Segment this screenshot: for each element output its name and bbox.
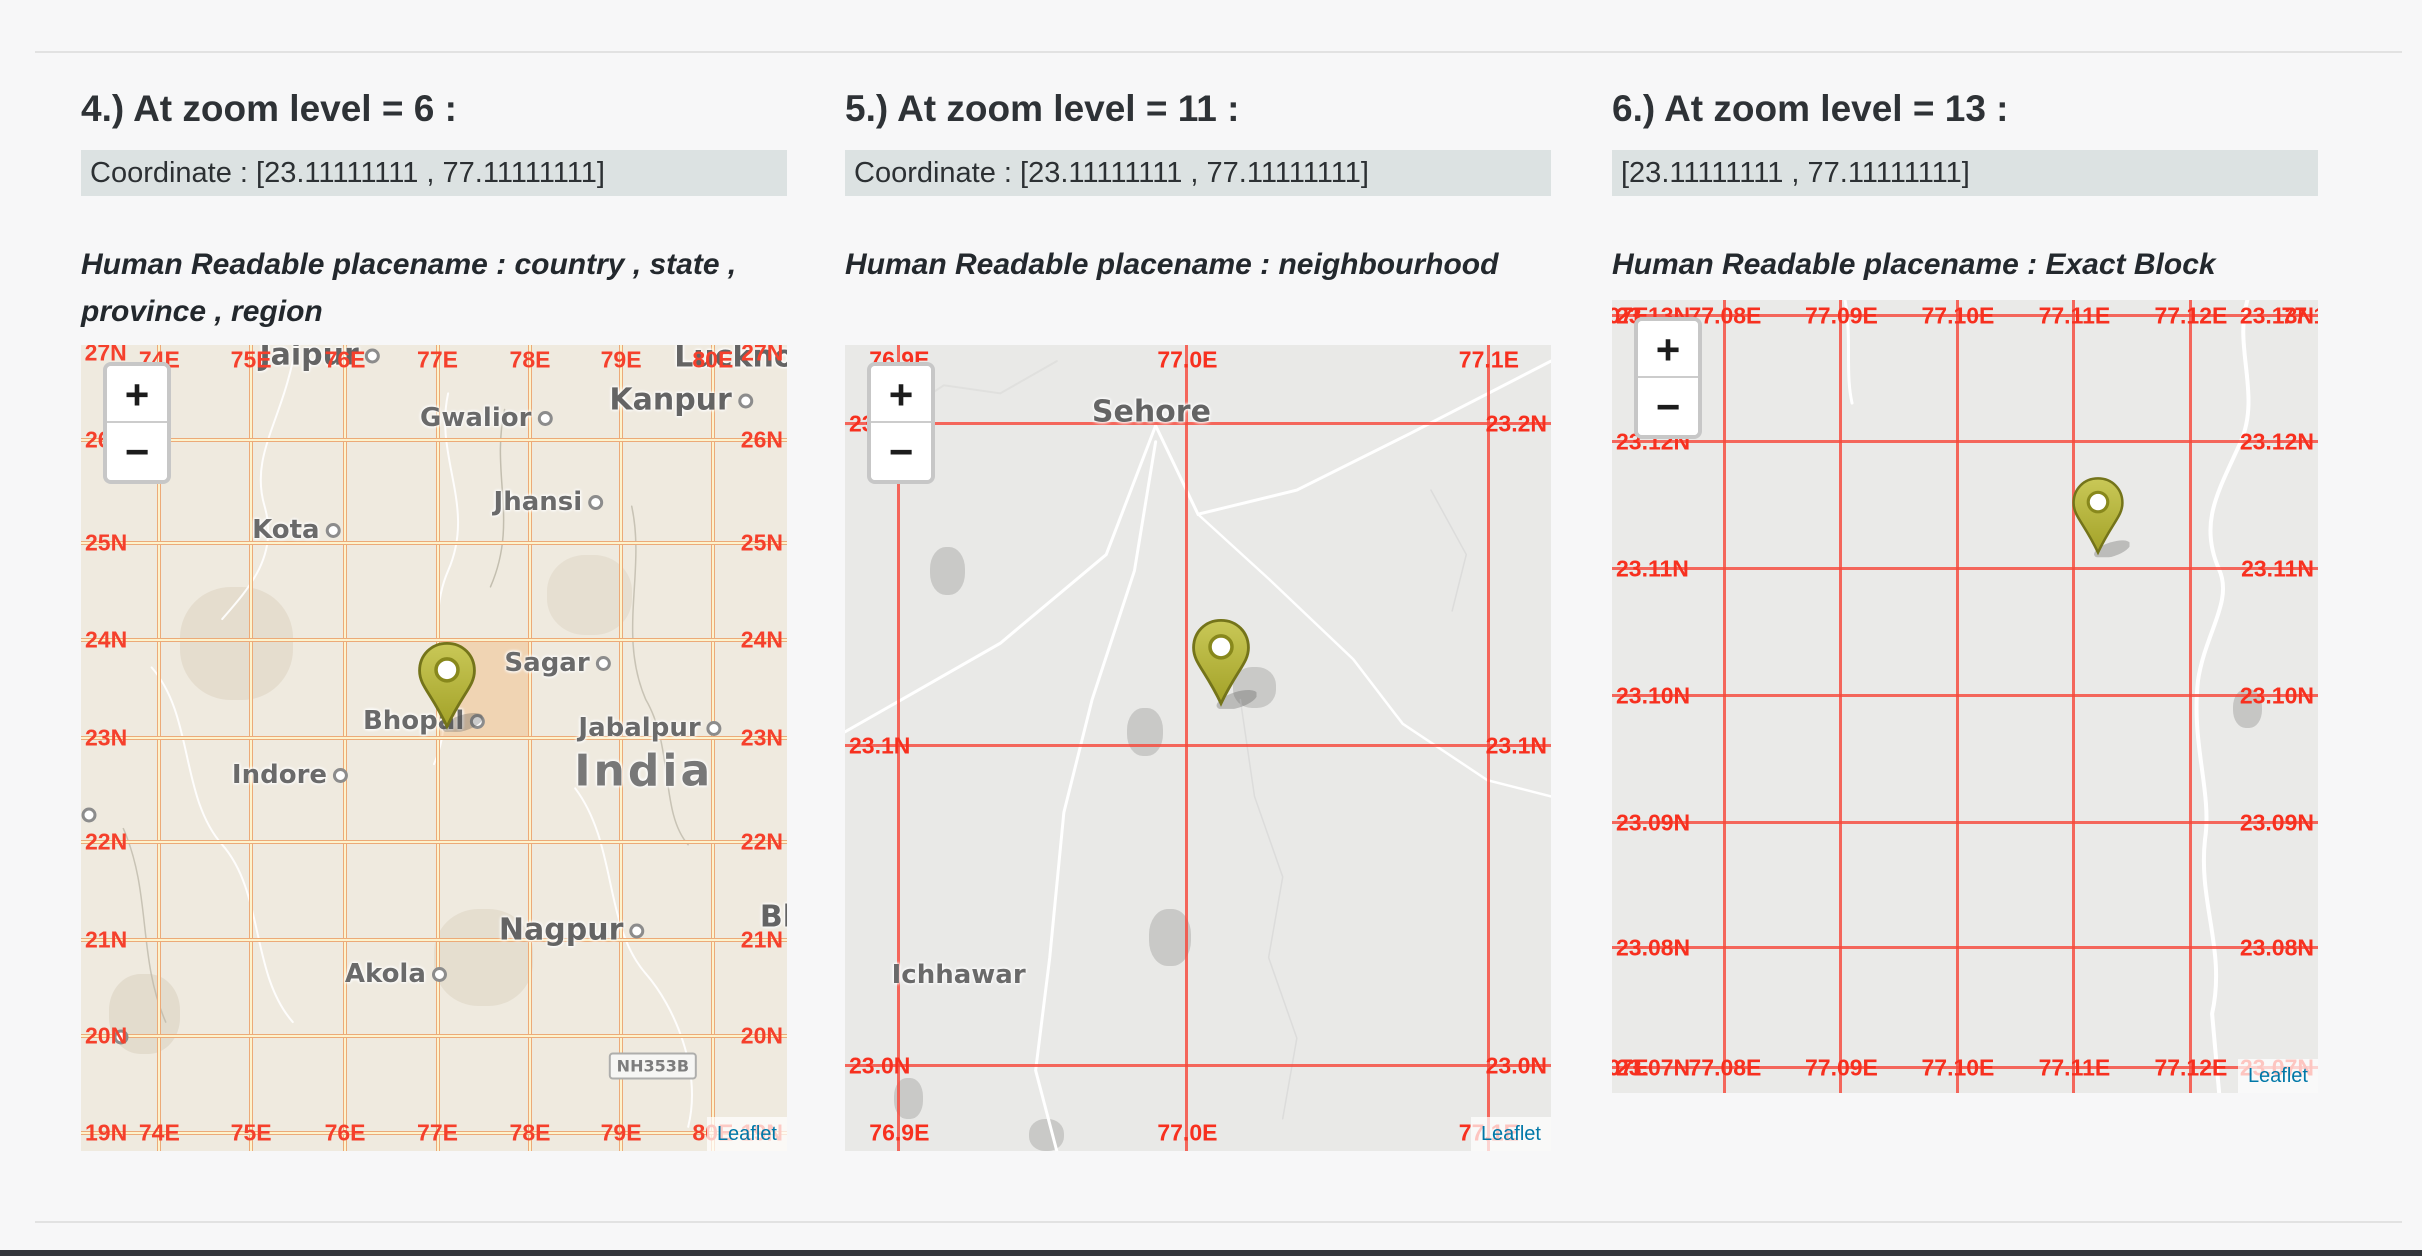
zoom-in-button[interactable]: + xyxy=(107,366,167,423)
zoom-out-button[interactable]: − xyxy=(107,423,167,480)
zoom-control: +− xyxy=(867,362,935,484)
marker-pin-icon xyxy=(2067,475,2130,557)
coordinate-value: [23.11111111 , 77.11111111] xyxy=(1612,150,2318,196)
panel-heading: 4.) At zoom level = 6 : xyxy=(81,88,787,130)
panel-zoom-6: 4.) At zoom level = 6 : Coordinate : [23… xyxy=(81,88,787,130)
placename-text: Human Readable placename : neighbourhood xyxy=(845,241,1551,288)
panel-zoom-13: 6.) At zoom level = 13 : [23.11111111 , … xyxy=(1612,88,2318,130)
map-marker[interactable] xyxy=(2067,475,2130,562)
attribution-bar: Leaflet xyxy=(2238,1059,2318,1093)
coordinate-value: Coordinate : [23.11111111 , 77.11111111] xyxy=(81,150,787,196)
leaflet-map-zoom-13[interactable]: 77.08E77.08E77.09E77.09E77.10E77.10E77.1… xyxy=(1612,300,2318,1093)
map-marker[interactable] xyxy=(1185,617,1256,714)
map-roads xyxy=(1612,300,2318,1093)
panel-heading: 6.) At zoom level = 13 : xyxy=(1612,88,2318,130)
zoom-in-button[interactable]: + xyxy=(1638,321,1698,378)
leaflet-attribution-link[interactable]: Leaflet xyxy=(2248,1065,2308,1087)
leaflet-map-zoom-6[interactable]: 74E74E75E75E76E76E77E77E78E78E79E79E80E8… xyxy=(81,345,787,1151)
map-roads xyxy=(845,345,1551,1151)
attribution-bar: Leaflet xyxy=(1471,1117,1551,1151)
map-marker[interactable] xyxy=(411,640,482,737)
zoom-out-button[interactable]: − xyxy=(1638,378,1698,435)
leaflet-map-zoom-11[interactable]: 76.9E76.9E77.0E77.0E77.1E77.1E23.2N23.2N… xyxy=(845,345,1551,1151)
marker-pin-icon xyxy=(411,640,482,732)
marker-pin-icon xyxy=(1185,617,1256,709)
panel-zoom-11: 5.) At zoom level = 11 : Coordinate : [2… xyxy=(845,88,1551,130)
town-dot xyxy=(81,807,96,822)
zoom-out-button[interactable]: − xyxy=(871,423,931,480)
placename-text: Human Readable placename : country , sta… xyxy=(81,241,787,335)
map-roads xyxy=(81,345,787,1151)
town-dot xyxy=(113,1030,128,1045)
bottom-divider xyxy=(35,1221,2402,1223)
coordinate-value: Coordinate : [23.11111111 , 77.11111111] xyxy=(845,150,1551,196)
window-bottom-bar xyxy=(0,1250,2422,1256)
placename-text: Human Readable placename : Exact Block xyxy=(1612,241,2318,288)
leaflet-attribution-link[interactable]: Leaflet xyxy=(717,1123,777,1145)
top-divider xyxy=(35,51,2402,53)
zoom-control: +− xyxy=(1634,317,1702,439)
zoom-control: +− xyxy=(103,362,171,484)
leaflet-attribution-link[interactable]: Leaflet xyxy=(1481,1123,1541,1145)
zoom-in-button[interactable]: + xyxy=(871,366,931,423)
panel-heading: 5.) At zoom level = 11 : xyxy=(845,88,1551,130)
attribution-bar: Leaflet xyxy=(707,1117,787,1151)
